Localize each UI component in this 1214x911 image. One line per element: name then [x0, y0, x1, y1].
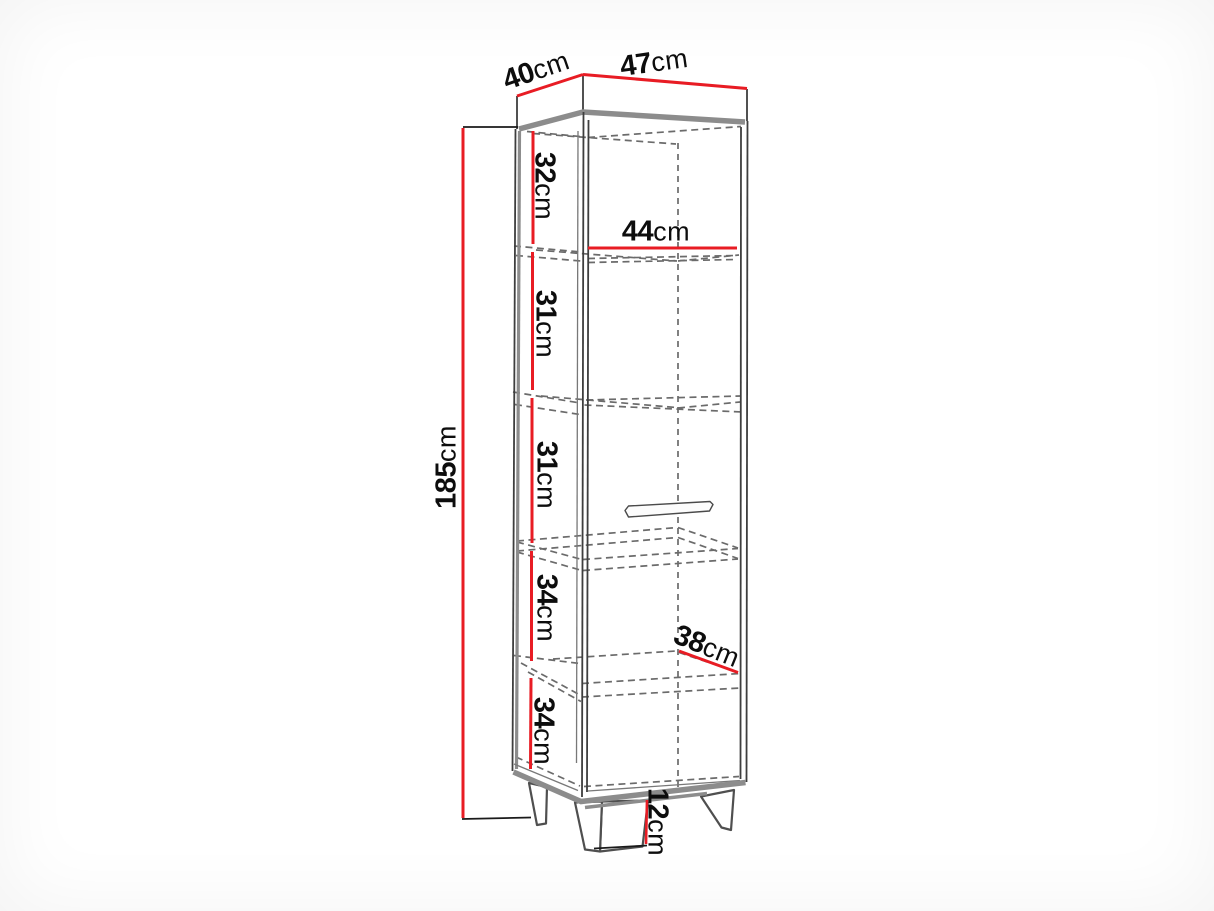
dim-label-section-top: 32cm [529, 152, 561, 220]
door-right-edge [577, 131, 579, 763]
dim-label-inner-depth: 38cm [669, 619, 744, 674]
dim-label-section-second: 31cm [530, 290, 562, 358]
dim-label-section-bottom: 34cm [528, 697, 560, 765]
dim-line-47cm [583, 75, 747, 89]
shelf-2-dashed [513, 392, 742, 415]
dim-label-section-fourth: 34cm [531, 574, 563, 642]
dim-label-total-height: 185cm [431, 425, 463, 509]
left-leg [529, 783, 547, 825]
right-inner-edge [741, 127, 742, 779]
dim-label-leg-height: 12cm [642, 788, 674, 856]
dimension-diagram-canvas: 40cm 47cm 185cm 32cm 44cm 31cm 31cm 34cm… [0, 0, 1214, 911]
top-panel-band [519, 112, 745, 129]
front-corner-edge [582, 112, 584, 797]
cabinet-dimension-diagram: 40cm 47cm 185cm 32cm 44cm 31cm 31cm 34cm… [0, 0, 1214, 911]
dim-label-top-front-width: 47cm [618, 42, 690, 83]
right-leg [701, 790, 734, 830]
door-handle [625, 502, 713, 518]
left-outer-edge [513, 129, 516, 771]
corner-leg-front [575, 802, 602, 852]
right-outer-edge [747, 121, 748, 782]
front-frame-edge [587, 120, 589, 792]
dimension-lines [463, 75, 747, 845]
top-inner-dash [533, 134, 676, 145]
dim-label-inner-width: 44cm [622, 216, 690, 248]
left-side-panel [517, 131, 520, 769]
dim-label-section-third: 31cm [531, 441, 563, 509]
corner-leg-side [600, 801, 648, 852]
top-inner-dash [588, 127, 741, 138]
height-bottom-tick [462, 818, 531, 820]
shelf-3-dashed [517, 528, 738, 571]
